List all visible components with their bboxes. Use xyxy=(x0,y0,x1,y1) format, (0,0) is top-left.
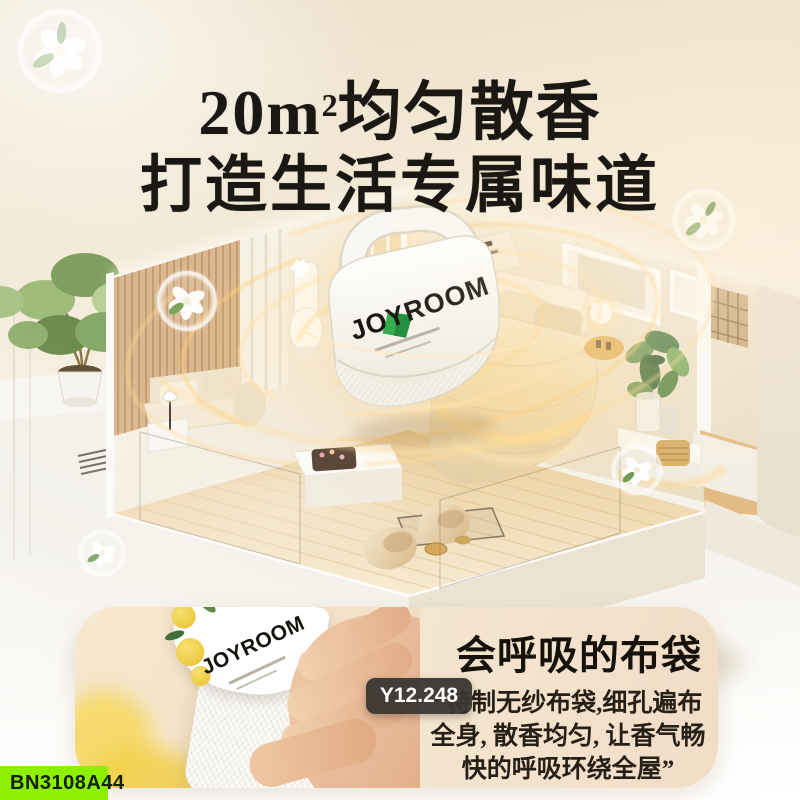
watermark-badge: Y12.248 xyxy=(366,678,472,714)
title-line-2: 打造生活专属味道 xyxy=(0,150,800,222)
flower-bubble-icon xyxy=(157,271,217,331)
title-line-1: 20m2均匀散香 xyxy=(0,68,800,150)
model-code-badge: BN3108A44 xyxy=(0,766,108,800)
flower-bubble-icon xyxy=(79,530,125,576)
quote-line: 快的呼吸环绕全屋” xyxy=(428,753,708,786)
quote-line: 全身, 散香均匀, 让香气畅 xyxy=(428,720,708,753)
product-poster: JOYROOM xyxy=(0,0,800,800)
flower-bubble-icon xyxy=(612,445,662,495)
section-heading: 会呼吸的布袋 xyxy=(456,623,718,681)
page-title: 20m2均匀散香 打造生活专属味道 xyxy=(0,68,800,222)
